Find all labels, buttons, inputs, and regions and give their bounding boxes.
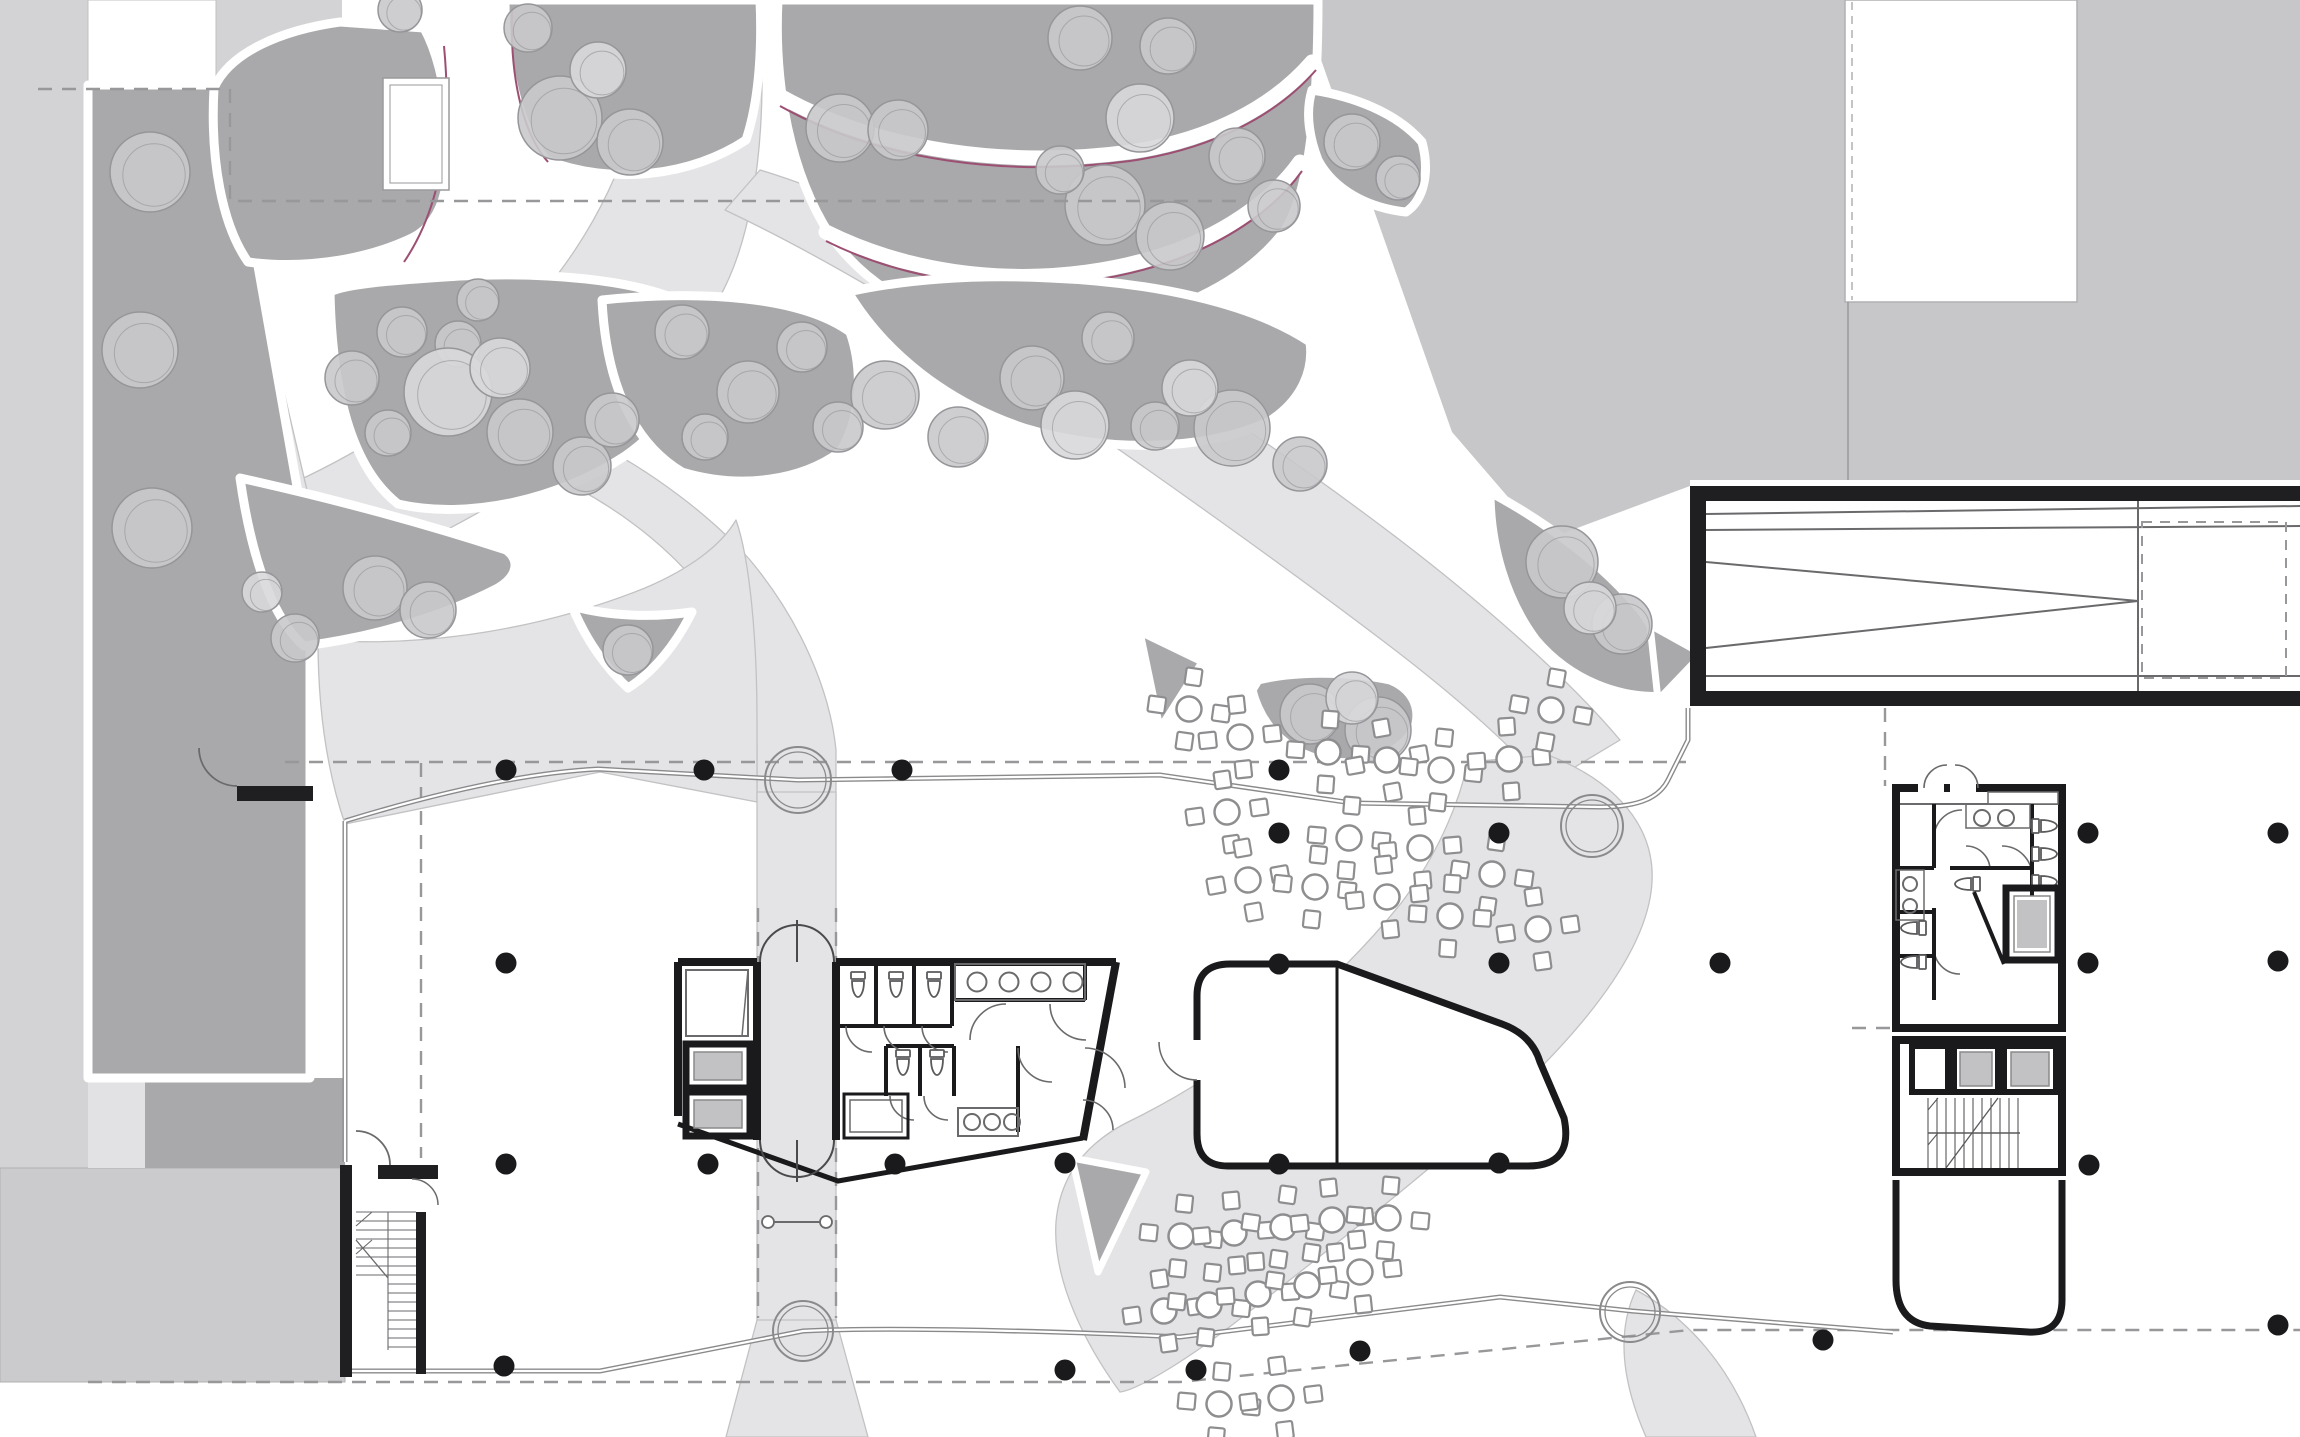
vent-strip <box>1988 792 2058 804</box>
chair <box>1320 1178 1338 1197</box>
ramp-wall-bottom <box>1690 691 2300 706</box>
elevator-car <box>694 1100 742 1128</box>
chair <box>1346 1206 1364 1223</box>
table-top <box>1406 834 1433 861</box>
chair <box>1355 1295 1373 1314</box>
chair <box>1410 885 1429 903</box>
column-dot <box>494 1356 515 1377</box>
chair <box>1348 1230 1366 1249</box>
column-dot <box>885 1154 906 1175</box>
tree-icon <box>813 402 863 452</box>
tree-icon <box>570 42 626 98</box>
chair <box>1496 924 1515 942</box>
table-top <box>1373 883 1400 910</box>
chair <box>1159 1334 1177 1353</box>
table-top <box>1437 903 1464 930</box>
column-dot <box>1269 954 1290 975</box>
existing-building-footprint <box>1845 0 2077 302</box>
column-dot <box>1350 1341 1371 1362</box>
table-top <box>1301 873 1328 900</box>
cafe-table-icon <box>1235 1352 1326 1437</box>
table-top <box>1226 723 1253 750</box>
chair <box>1150 1269 1168 1288</box>
chair <box>1222 1191 1239 1209</box>
tree-icon <box>1048 6 1112 70</box>
tree-icon <box>112 488 192 568</box>
tree-canopy <box>1136 202 1204 270</box>
tree-icon <box>597 109 663 175</box>
chair <box>1213 770 1231 789</box>
right-core-hall <box>1896 1180 2062 1332</box>
chair <box>1345 892 1364 910</box>
door-arc <box>356 1131 390 1165</box>
chair <box>1273 875 1292 893</box>
chair <box>1269 1250 1287 1269</box>
chair <box>1287 741 1305 758</box>
tree-icon <box>1162 360 1218 416</box>
chair <box>1207 1427 1224 1437</box>
column-dot <box>1269 1154 1290 1175</box>
chair <box>1175 732 1193 751</box>
chair <box>1439 939 1456 957</box>
chair <box>1147 695 1166 713</box>
tree-canopy <box>585 393 639 447</box>
chair <box>1268 1356 1286 1375</box>
chair <box>1337 861 1354 879</box>
column-dot <box>892 760 913 781</box>
chair <box>1139 1224 1158 1242</box>
tree-icon <box>1324 114 1380 170</box>
tree-canopy <box>1048 6 1112 70</box>
chair <box>1509 695 1529 714</box>
table-top <box>1267 1384 1295 1412</box>
table-top <box>1427 756 1454 783</box>
chair <box>1533 952 1551 971</box>
chair <box>1252 1317 1269 1335</box>
neighbor-block-bottomleft <box>0 1168 345 1382</box>
chair <box>1198 732 1217 750</box>
context-block-topright <box>1300 0 2300 540</box>
chair <box>1204 1263 1222 1282</box>
neighbor-strip-pale <box>88 1078 145 1168</box>
table-top <box>1213 798 1241 826</box>
planter-box <box>383 78 449 190</box>
tree-icon <box>868 100 928 160</box>
chair <box>1239 1393 1258 1411</box>
central-core <box>678 920 1125 1228</box>
elevator-car <box>1960 1052 1992 1086</box>
chair <box>1228 695 1246 714</box>
chair <box>1265 1271 1284 1289</box>
tree-icon <box>806 94 874 162</box>
chair <box>1375 855 1393 874</box>
chair <box>1276 1421 1294 1437</box>
chair <box>1278 1185 1296 1204</box>
tree-icon <box>470 338 530 398</box>
chair <box>1382 920 1400 939</box>
tree-icon <box>1140 18 1196 74</box>
chair <box>1310 845 1328 864</box>
tree-canopy <box>457 279 499 321</box>
column-dot <box>1269 760 1290 781</box>
tree-icon <box>1036 146 1084 194</box>
chair <box>1304 1385 1323 1403</box>
stair-wall-east <box>416 1212 426 1374</box>
tree-icon <box>242 572 282 612</box>
wall-stub <box>237 786 313 801</box>
chair <box>1345 756 1365 775</box>
chair <box>1524 887 1542 906</box>
tree-canopy <box>1564 582 1616 634</box>
chair <box>1250 798 1269 816</box>
column-dot <box>496 760 517 781</box>
tree-canopy <box>570 42 626 98</box>
tree-icon <box>928 407 988 467</box>
tree-icon <box>487 399 553 465</box>
tree-canopy <box>325 351 379 405</box>
ramp-wall-left <box>1690 486 1706 706</box>
chair <box>1293 1308 1311 1327</box>
tree-icon <box>717 361 779 423</box>
tree-icon <box>1106 84 1174 152</box>
trapezoid-door-arc <box>1159 1042 1197 1080</box>
tree-canopy <box>343 556 407 620</box>
tree-canopy <box>868 100 928 160</box>
tree-canopy <box>1162 360 1218 416</box>
column-dot <box>2268 951 2289 972</box>
chair <box>1263 725 1282 743</box>
table-top <box>1335 824 1362 851</box>
neighbor-strip-dark <box>145 1078 345 1168</box>
chair <box>1409 905 1427 922</box>
tree-icon <box>1248 180 1300 232</box>
tree-icon <box>271 614 319 662</box>
table-top <box>1205 1390 1232 1417</box>
tree-canopy <box>1324 114 1380 170</box>
tree-canopy <box>487 399 553 465</box>
chair <box>1176 1194 1194 1213</box>
tree-icon <box>1209 128 1265 184</box>
chair <box>1408 806 1425 824</box>
site-plan-canvas <box>0 0 2300 1437</box>
street-left-band <box>0 0 88 1168</box>
chair <box>1167 1293 1186 1311</box>
table-top <box>1318 1206 1345 1233</box>
chair <box>1343 796 1360 814</box>
chair <box>1185 807 1204 825</box>
chair <box>1177 1392 1195 1409</box>
chair <box>1122 1306 1141 1324</box>
chair <box>1383 1260 1402 1278</box>
column-dot <box>1269 823 1290 844</box>
path-band-flare <box>726 1320 868 1437</box>
column-dot <box>1489 1153 1510 1174</box>
column-dot <box>2079 1155 2100 1176</box>
tree-icon <box>655 305 709 359</box>
tree-icon <box>1564 582 1616 634</box>
chair <box>1317 775 1334 793</box>
tree-canopy <box>1041 391 1109 459</box>
table-top <box>1315 739 1342 766</box>
tree-icon <box>603 625 653 675</box>
tree-icon <box>682 414 728 460</box>
stair-wall-top <box>378 1165 438 1179</box>
chair <box>1444 875 1461 893</box>
column-dot <box>2268 1315 2289 1336</box>
chair <box>1197 1328 1215 1347</box>
tree-icon <box>1082 312 1134 364</box>
tree-canopy <box>1248 180 1300 232</box>
chair <box>1515 869 1534 887</box>
column-dot <box>1710 953 1731 974</box>
tree-canopy <box>597 109 663 175</box>
chair <box>1303 910 1321 929</box>
chair <box>1192 1227 1210 1244</box>
chair <box>1217 1288 1235 1305</box>
elevator-car <box>694 1052 742 1080</box>
stair-wall-west <box>340 1165 352 1377</box>
chair <box>1468 753 1486 770</box>
stair-treads <box>356 1212 416 1350</box>
tree-icon <box>1136 202 1204 270</box>
tree-canopy <box>1209 128 1265 184</box>
ramp-wall-top <box>1690 486 2300 501</box>
column-dot <box>1813 1330 1834 1351</box>
tree-icon <box>1376 156 1420 200</box>
tree-canopy <box>1082 312 1134 364</box>
table-top <box>1234 866 1263 895</box>
chair <box>1290 1215 1309 1233</box>
tree-canopy <box>717 361 779 423</box>
chair <box>1382 1176 1399 1194</box>
column-dot <box>496 953 517 974</box>
table-top <box>1374 1204 1401 1231</box>
column-dot <box>1489 953 1510 974</box>
tree-canopy <box>400 582 456 638</box>
chair <box>1498 718 1515 736</box>
chair <box>1322 711 1339 729</box>
tree-canopy <box>1140 18 1196 74</box>
elevator-car <box>2011 1052 2049 1086</box>
chair <box>1383 782 1402 802</box>
chair <box>1213 1362 1230 1380</box>
chair <box>1473 910 1491 927</box>
ramp-gap <box>1690 480 2300 486</box>
column-dot <box>2078 953 2099 974</box>
chair <box>1233 838 1252 858</box>
chair <box>1573 706 1593 725</box>
tree-icon <box>377 307 427 357</box>
chair <box>1184 667 1202 686</box>
tree-icon <box>400 582 456 638</box>
path-interior-band <box>757 792 836 1324</box>
context-white-plot <box>88 0 216 83</box>
chair <box>1241 1213 1260 1231</box>
tree-canopy <box>470 338 530 398</box>
column-dot <box>2268 823 2289 844</box>
tree-icon <box>343 556 407 620</box>
door-gap <box>1918 784 1944 792</box>
tree-canopy <box>806 94 874 162</box>
door-gap <box>1950 784 1976 792</box>
tree-icon <box>457 279 499 321</box>
tree-canopy <box>1106 84 1174 152</box>
chair <box>1169 1259 1187 1278</box>
column-dot <box>694 760 715 781</box>
chair <box>1228 1256 1245 1274</box>
door-arc <box>412 1179 438 1205</box>
column-dot <box>496 1154 517 1175</box>
tree-icon <box>102 312 178 388</box>
table-top <box>1167 1222 1194 1249</box>
chair <box>1327 1243 1345 1262</box>
chair <box>1302 1243 1320 1262</box>
tree-icon <box>110 132 190 212</box>
chair <box>1503 782 1520 800</box>
chair <box>1244 902 1263 922</box>
chair <box>1318 1267 1337 1285</box>
chair <box>1429 793 1447 812</box>
tree-icon <box>365 410 411 456</box>
chair <box>1436 728 1454 747</box>
cafe-table-icon <box>1270 842 1360 932</box>
chair <box>1372 718 1391 738</box>
tree-canopy <box>928 407 988 467</box>
tree-canopy <box>1273 437 1327 491</box>
column-dot <box>698 1154 719 1175</box>
chair <box>1247 1253 1264 1271</box>
tree-icon <box>504 4 552 52</box>
tree-icon <box>777 322 827 372</box>
chair <box>1411 1212 1429 1229</box>
chair <box>1376 1241 1393 1259</box>
column-dot <box>1186 1360 1207 1381</box>
chair <box>1547 668 1566 688</box>
tree-icon <box>1041 391 1109 459</box>
elevator-car <box>2017 900 2047 948</box>
table-top <box>1346 1258 1373 1285</box>
tree-icon <box>585 393 639 447</box>
right-core <box>1896 765 2062 1332</box>
chair <box>1443 836 1461 853</box>
chair <box>1206 876 1226 895</box>
parking-ramp <box>1690 480 2300 706</box>
column-dot <box>1055 1153 1076 1174</box>
column-dot <box>1055 1360 1076 1381</box>
chair <box>1235 760 1253 779</box>
tree-icon <box>325 351 379 405</box>
column-dot <box>1489 823 1510 844</box>
tree-canopy <box>242 572 282 612</box>
trapezoid-door-gap <box>1192 1040 1202 1080</box>
chair <box>1399 758 1418 776</box>
tree-icon <box>1273 437 1327 491</box>
chair <box>1536 732 1555 752</box>
site-plan-drawing <box>0 0 2300 1437</box>
chair <box>1307 826 1325 843</box>
column-dot <box>2078 823 2099 844</box>
tree-canopy <box>655 305 709 359</box>
chair <box>1561 915 1580 933</box>
table-top <box>1496 746 1523 773</box>
